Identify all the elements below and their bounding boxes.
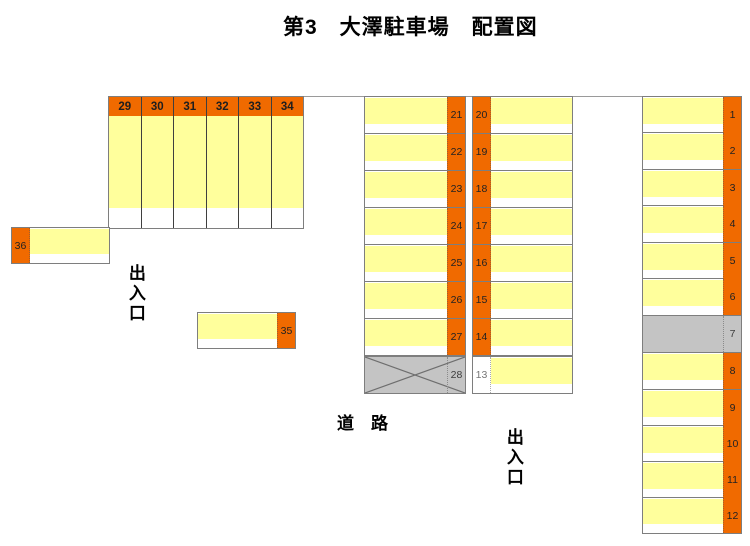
stall-14: 14 (472, 318, 573, 356)
stall-27: 27 (364, 318, 466, 356)
stall-block-29-34: 29 30 31 32 33 34 (108, 96, 304, 229)
stall-area (643, 279, 723, 315)
stall-area (365, 319, 447, 355)
stall-area (643, 426, 723, 462)
stall-34: 34 (272, 97, 304, 228)
stall-number: 3 (723, 170, 741, 206)
entrance-label-left: 出入口 (126, 264, 144, 324)
stall-area (643, 206, 723, 242)
stall-number: 30 (142, 97, 174, 116)
stall-number: 18 (473, 171, 491, 207)
stall-5: 5 (642, 242, 742, 280)
stall-number: 35 (277, 313, 295, 348)
stall-7: 7 (642, 315, 742, 353)
stall-3: 3 (642, 169, 742, 207)
stall-number: 22 (447, 134, 465, 170)
stall-6: 6 (642, 278, 742, 316)
stall-area (491, 357, 572, 393)
stall-number: 25 (447, 245, 465, 281)
stall-22: 22 (364, 133, 466, 171)
stall-number: 2 (723, 133, 741, 169)
stall-11: 11 (642, 461, 742, 499)
stall-number: 10 (723, 426, 741, 462)
stall-area (365, 134, 447, 170)
stall-18: 18 (472, 170, 573, 208)
stall-number: 6 (723, 279, 741, 315)
stall-area (643, 390, 723, 426)
stall-area (365, 171, 447, 207)
stall-area (491, 134, 572, 170)
stall-number: 36 (12, 228, 30, 263)
stall-area (207, 116, 239, 208)
stall-area (643, 316, 723, 352)
parking-layout-diagram: 第3 大澤駐車場 配置図 29 30 31 32 33 34 36 出入口 35… (0, 0, 750, 546)
stall-2: 2 (642, 132, 742, 170)
stall-30: 30 (142, 97, 175, 228)
stall-9: 9 (642, 389, 742, 427)
stall-area (198, 313, 277, 348)
stall-17: 17 (472, 207, 573, 245)
stall-area (643, 243, 723, 279)
stall-area (643, 462, 723, 498)
stall-number: 27 (447, 319, 465, 355)
stall-20: 20 (472, 96, 573, 134)
stall-area (30, 228, 109, 263)
stall-31: 31 (174, 97, 207, 228)
stall-number: 33 (239, 97, 271, 116)
stall-number: 5 (723, 243, 741, 279)
stall-number: 8 (723, 353, 741, 389)
stall-area (643, 498, 723, 533)
road-label: 道 路 (337, 409, 388, 434)
stall-area (109, 116, 141, 208)
stall-area (272, 116, 304, 208)
stall-area (643, 353, 723, 389)
stall-16: 16 (472, 244, 573, 282)
stall-number: 16 (473, 245, 491, 281)
stall-15: 15 (472, 281, 573, 319)
stall-number: 26 (447, 282, 465, 318)
stall-area (365, 245, 447, 281)
stall-8: 8 (642, 352, 742, 390)
stall-number: 17 (473, 208, 491, 244)
stall-number: 29 (109, 97, 141, 116)
stall-area (491, 171, 572, 207)
stall-28: 28 (364, 356, 466, 394)
stall-area (365, 208, 447, 244)
stall-26: 26 (364, 281, 466, 319)
stall-29: 29 (109, 97, 142, 228)
stall-33: 33 (239, 97, 272, 228)
stall-area (142, 116, 174, 208)
stall-12: 12 (642, 497, 742, 534)
stall-number: 28 (447, 357, 465, 393)
stall-area (239, 116, 271, 208)
stall-23: 23 (364, 170, 466, 208)
stall-number: 9 (723, 390, 741, 426)
stall-area (491, 319, 572, 355)
stall-number: 34 (272, 97, 304, 116)
stall-number: 11 (723, 462, 741, 498)
stall-number: 20 (473, 97, 491, 133)
stall-number: 4 (723, 206, 741, 242)
stall-number: 21 (447, 97, 465, 133)
stall-area (491, 208, 572, 244)
stall-area (365, 282, 447, 318)
stall-24: 24 (364, 207, 466, 245)
stall-21: 21 (364, 96, 466, 134)
stall-4: 4 (642, 205, 742, 243)
stall-area (643, 170, 723, 206)
stall-number: 31 (174, 97, 206, 116)
stall-number: 14 (473, 319, 491, 355)
stall-number: 12 (723, 498, 741, 533)
stall-number: 7 (723, 316, 741, 352)
stall-number: 1 (723, 97, 741, 133)
stall-number: 32 (207, 97, 239, 116)
stall-10: 10 (642, 425, 742, 463)
stall-36: 36 (11, 227, 110, 264)
stall-1: 1 (642, 96, 742, 134)
stall-area (643, 97, 723, 133)
stall-19: 19 (472, 133, 573, 171)
stall-35: 35 (197, 312, 296, 349)
stall-number: 24 (447, 208, 465, 244)
stall-13: 13 (472, 356, 573, 394)
stall-area (643, 133, 723, 169)
stall-area (174, 116, 206, 208)
diagram-title: 第3 大澤駐車場 配置図 (283, 11, 538, 41)
stall-number: 23 (447, 171, 465, 207)
stall-area (365, 97, 447, 133)
stall-number: 13 (473, 357, 491, 393)
stall-area (491, 97, 572, 133)
stall-32: 32 (207, 97, 240, 228)
entrance-label-right: 出入口 (504, 428, 522, 488)
stall-25: 25 (364, 244, 466, 282)
stall-area (491, 282, 572, 318)
stall-number: 15 (473, 282, 491, 318)
stall-number: 19 (473, 134, 491, 170)
stall-area (491, 245, 572, 281)
